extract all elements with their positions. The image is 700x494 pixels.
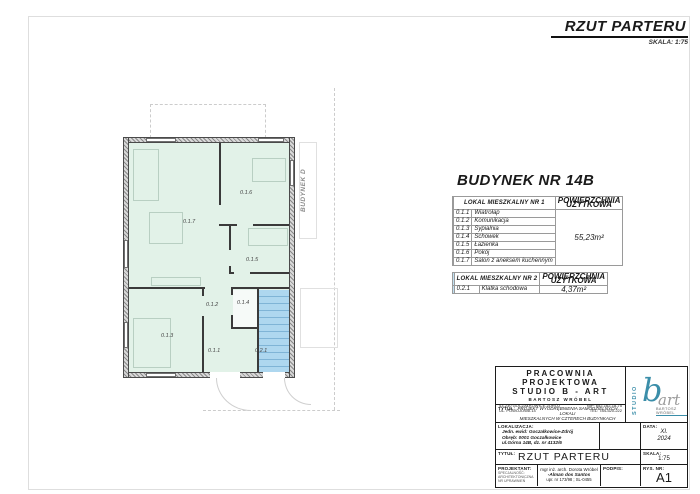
neighbor-stairs-outline xyxy=(300,288,338,348)
partition-wall xyxy=(231,287,289,289)
room-label-0-1-4: 0.1.4 xyxy=(237,300,249,306)
room-label-0-2-1: 0.2.1 xyxy=(255,348,267,354)
neighbor-building-strip: BUDYNEK D xyxy=(299,142,317,239)
room-name: Komunikacja xyxy=(472,218,555,226)
partition-wall xyxy=(231,289,233,295)
partition-wall xyxy=(231,327,259,329)
room-label-0-1-2: 0.1.2 xyxy=(206,302,218,308)
window-left-bedroom xyxy=(124,322,128,348)
desk-outline xyxy=(252,158,286,182)
signature-label: PODPIS: xyxy=(603,466,638,471)
area-header-line2: UŻYTKOWA xyxy=(542,279,605,284)
company-name-line1: PRACOWNIA PROJEKTOWA xyxy=(496,369,625,387)
drawing-title-label: TYTUŁ: xyxy=(498,451,515,456)
room-name: Wiatrołap xyxy=(472,210,555,218)
table-header-row: LOKAL MIESZKALNY NR 2 POWIERZCHNIA UŻYTK… xyxy=(453,273,608,286)
bed-outline xyxy=(133,318,171,368)
studio-logo: STUDIO b art BARTOSZ WRÓBEL xyxy=(626,367,687,422)
window-bottom-bedroom xyxy=(146,373,176,377)
location-details: Jedn. ewid: Goczałkowice-Zdrój Obręb: 00… xyxy=(498,429,597,446)
partition-wall xyxy=(231,315,233,327)
total-area-value: 55,23m² xyxy=(555,210,623,266)
entrance-door-opening xyxy=(210,372,240,378)
room-label-0-1-7: 0.1.7 xyxy=(183,219,195,225)
neighbor-outline-top xyxy=(150,104,266,138)
logo-owner-name: BARTOSZ WRÓBEL xyxy=(656,407,687,416)
date-value: XI. 2024 xyxy=(643,429,685,443)
partition-wall xyxy=(253,224,289,226)
partition-wall xyxy=(202,289,204,296)
project-description-line: PROJEKT WYODRĘBNIENIA SAMODZIELNYCH LOKA… xyxy=(512,406,623,416)
table-row: 0.1.1 Wiatrołap 55,23m² xyxy=(453,210,623,218)
window-left-living xyxy=(124,240,128,268)
location-line: ul.Górna 14B, dz. nr 4132/6 xyxy=(502,440,597,446)
window-top-left xyxy=(146,138,176,142)
empty-cell xyxy=(600,423,641,449)
neighbor-dash-bottom xyxy=(203,410,340,411)
dining-table-outline xyxy=(149,212,183,244)
entrance-door-swing-arc xyxy=(216,378,251,411)
scale-value: 1:75 xyxy=(643,456,685,462)
date-month: XI. xyxy=(643,429,685,436)
storage-room-floor xyxy=(233,290,257,327)
room-name: Sypialnia xyxy=(472,226,555,234)
room-number: 0.2.1 xyxy=(454,286,479,294)
table-title: LOKAL MIESZKALNY NR 1 xyxy=(454,197,556,210)
total-area-value: 4,37m² xyxy=(540,286,608,294)
room-name: Łazienka xyxy=(472,242,555,250)
room-number: 0.1.2 xyxy=(454,218,472,226)
partition-wall xyxy=(250,272,289,274)
sofa-outline xyxy=(133,149,159,201)
room-name: Schowek xyxy=(472,234,555,242)
company-name-line2: STUDIO B - ART xyxy=(496,387,625,396)
window-top-right xyxy=(258,138,284,142)
room-table-lokal-2: LOKAL MIESZKALNY NR 2 POWIERZCHNIA UŻYTK… xyxy=(452,272,608,294)
window-right-room xyxy=(290,160,294,186)
building-heading: BUDYNEK NR 14B xyxy=(457,172,594,189)
area-header-line2: UŻYTKOWA xyxy=(558,203,621,208)
partition-wall xyxy=(229,224,231,250)
kitchen-counter-outline xyxy=(151,277,201,286)
room-name: Pokój xyxy=(472,250,555,258)
project-title-label: TYTUŁ: xyxy=(498,406,512,422)
room-number: 0.1.6 xyxy=(454,250,472,258)
partition-wall xyxy=(129,287,205,289)
area-header: POWIERZCHNIA UŻYTKOWA xyxy=(540,273,608,286)
room-name: Salon z aneksem kuchennym xyxy=(472,258,555,266)
room-name: Klatka schodowa xyxy=(479,286,540,294)
logo-studio-text: STUDIO xyxy=(632,373,638,415)
room-number: 0.1.7 xyxy=(454,258,472,266)
room-number: 0.1.3 xyxy=(454,226,472,234)
room-label-0-1-6: 0.1.6 xyxy=(240,190,252,196)
table-header-row: LOKAL MIESZKALNY NR 1 POWIERZCHNIA UŻYTK… xyxy=(453,197,623,210)
table-row: 0.2.1 Klatka schodowa 4,37m² xyxy=(453,286,608,294)
project-description-line: MIESZKALNYCH W CZTERECH BUDYNKACH MIESZK… xyxy=(512,416,623,422)
project-description: PROJEKT WYODRĘBNIENIA SAMODZIELNYCH LOKA… xyxy=(512,406,623,422)
room-label-0-1-3: 0.1.3 xyxy=(161,333,173,339)
designer-sub-labels: SPECJALNOŚĆ: ARCHITEKTONICZNA NR UPRAWNI… xyxy=(498,471,535,484)
partition-wall xyxy=(229,272,234,274)
partition-wall xyxy=(257,289,259,372)
table-title: LOKAL MIESZKALNY NR 2 xyxy=(454,273,540,286)
designer-license: upr. nr 173/98 ; SL-0455 xyxy=(540,477,598,482)
room-number: 0.1.1 xyxy=(454,210,472,218)
room-number: 0.1.4 xyxy=(454,234,472,242)
partition-wall xyxy=(202,316,204,372)
drawing-title: RZUT PARTERU xyxy=(498,451,638,463)
partition-wall xyxy=(219,143,221,205)
staircase-floor xyxy=(259,290,289,372)
room-table-lokal-1: LOKAL MIESZKALNY NR 1 POWIERZCHNIA UŻYTK… xyxy=(452,196,623,266)
area-header: POWIERZCHNIA UŻYTKOWA xyxy=(555,197,623,210)
staircase-door-opening xyxy=(263,372,285,378)
room-label-0-1-1: 0.1.1 xyxy=(208,348,220,354)
designer-sub-line: NR UPRAWNIEŃ xyxy=(498,479,535,483)
drawing-number-value: A1 xyxy=(643,471,685,485)
wardrobe-outline xyxy=(248,228,288,246)
room-number: 0.1.5 xyxy=(454,242,472,250)
partition-wall xyxy=(219,224,237,226)
date-year: 2024 xyxy=(643,436,685,443)
title-block: PRACOWNIA PROJEKTOWA STUDIO B - ART BART… xyxy=(495,366,688,488)
neighbor-building-label: BUDYNEK D xyxy=(300,143,316,238)
staircase-door-swing-arc xyxy=(284,378,311,405)
room-label-0-1-5: 0.1.5 xyxy=(246,257,258,263)
neighbor-dash-right xyxy=(334,88,335,410)
